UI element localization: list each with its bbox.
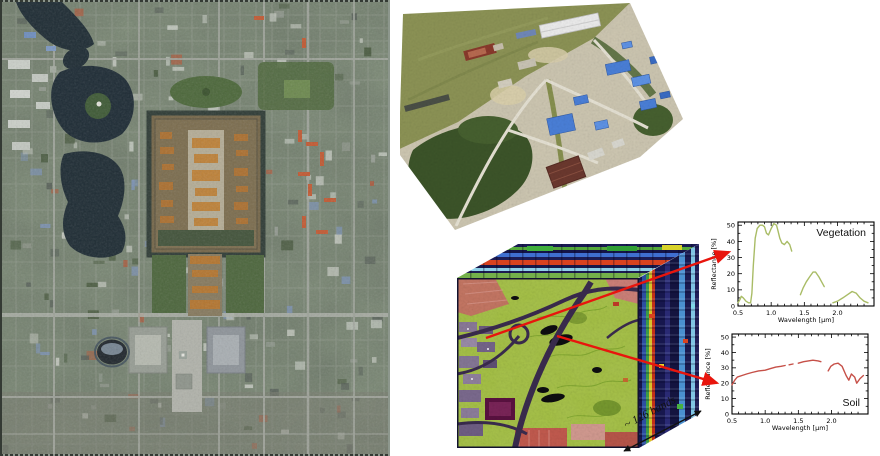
y-tick-label: 30 <box>727 254 735 262</box>
beijing-satellite-art <box>2 2 388 454</box>
x-axis-label: Wavelength [µm] <box>778 316 834 324</box>
y-axis-label: Reflectance [%] <box>704 348 712 399</box>
spectrum-curve <box>738 224 792 303</box>
beijing-satellite-image <box>0 0 390 456</box>
figure-canvas: ~ 126 bands 0.51.01.52.001020304050Wavel… <box>0 0 880 456</box>
vegetation-spectrum-plot: 0.51.01.52.001020304050Wavelength [µm]Re… <box>708 216 880 328</box>
y-tick-label: 10 <box>727 286 735 294</box>
port-aerial-image <box>398 0 690 232</box>
spectrum-curve <box>833 292 868 303</box>
y-tick-label: 0 <box>731 302 735 310</box>
spectrum-curve <box>828 363 863 383</box>
y-axis-label: Reflectance [%] <box>710 238 718 289</box>
y-tick-label: 10 <box>721 395 729 403</box>
soil-spectrum-plot: 0.51.01.52.001020304050Wavelength [µm]Re… <box>702 328 874 436</box>
chart-title: Soil <box>842 397 860 409</box>
y-tick-label: 40 <box>727 238 735 246</box>
chart-title: Vegetation <box>816 227 866 239</box>
x-tick-label: 1.0 <box>766 309 776 317</box>
spectrum-curve <box>789 364 793 365</box>
x-tick-label: 1.0 <box>760 417 770 425</box>
y-tick-label: 40 <box>721 349 729 357</box>
y-tick-label: 0 <box>725 410 729 418</box>
x-axis-label: Wavelength [µm] <box>772 424 828 432</box>
y-tick-label: 20 <box>721 380 729 388</box>
y-tick-label: 50 <box>721 333 729 341</box>
spectrum-curve <box>800 272 824 295</box>
y-tick-label: 30 <box>721 364 729 372</box>
spectrum-curve <box>798 360 821 363</box>
y-tick-label: 50 <box>727 222 735 230</box>
y-tick-label: 20 <box>727 270 735 278</box>
spectrum-curve <box>732 366 785 385</box>
